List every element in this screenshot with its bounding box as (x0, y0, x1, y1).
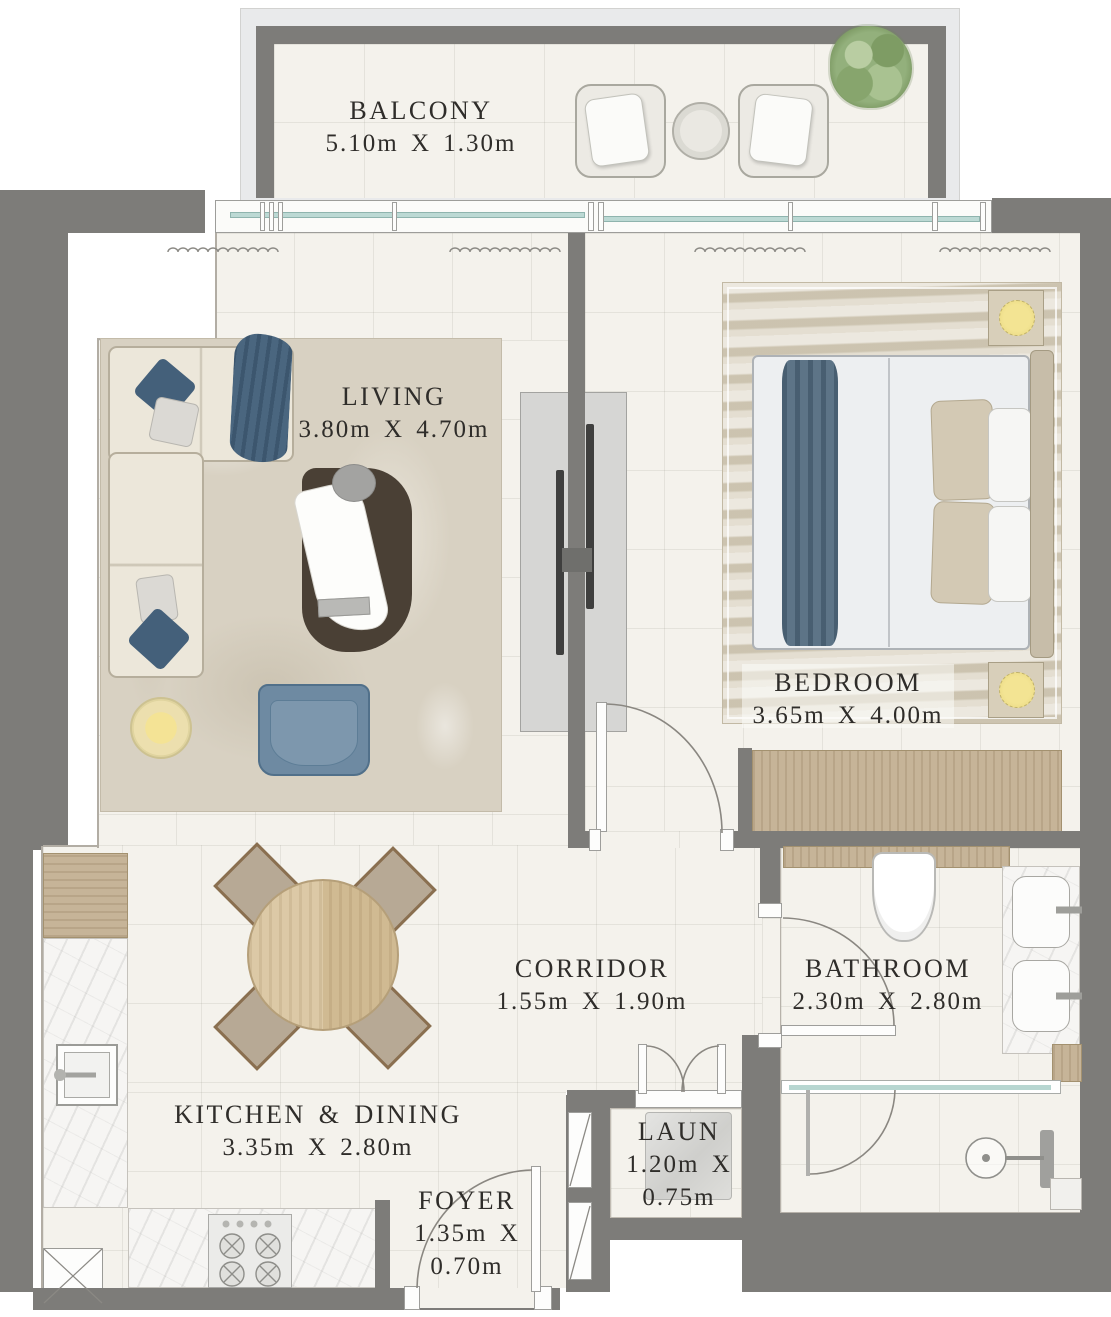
room-dims: 3.65m X 4.00m (753, 699, 944, 732)
room-name: LIVING (299, 380, 490, 413)
room-dims: 1.35m X (414, 1217, 520, 1250)
room-dims: 0.75m (626, 1181, 732, 1214)
room-name: BEDROOM (753, 666, 944, 699)
shower-head-icon (966, 1138, 1044, 1178)
linework-overlay (0, 0, 1111, 1317)
room-dims: 0.70m (414, 1250, 520, 1283)
living-label: LIVING 3.80m X 4.70m (299, 380, 490, 446)
kitchen-dining-label: KITCHEN & DINING 3.35m X 2.80m (174, 1098, 462, 1164)
laundry-label: LAUN 1.20m X 0.75m (626, 1115, 732, 1214)
corridor-label: CORRIDOR 1.55m X 1.90m (497, 952, 688, 1018)
room-name: KITCHEN & DINING (174, 1098, 462, 1131)
room-dims: 1.55m X 1.90m (497, 985, 688, 1018)
appliance-x-lines (44, 1249, 102, 1303)
floor-plan-canvas: BALCONY 5.10m X 1.30m LIVING 3.80m X 4.7… (0, 0, 1111, 1317)
room-dims: 1.20m X (626, 1148, 732, 1181)
balcony-label: BALCONY 5.10m X 1.30m (326, 94, 517, 160)
closet-louver-lines (570, 1114, 590, 1280)
kitchen-faucet-icon (54, 1069, 96, 1081)
foyer-label: FOYER 1.35m X 0.70m (414, 1184, 520, 1283)
room-dims: 3.80m X 4.70m (299, 413, 490, 446)
room-name: LAUN (626, 1115, 732, 1148)
room-dims: 2.30m X 2.80m (793, 985, 984, 1018)
bedroom-label: BEDROOM 3.65m X 4.00m (753, 666, 944, 732)
bathroom-label: BATHROOM 2.30m X 2.80m (793, 952, 984, 1018)
room-name: CORRIDOR (497, 952, 688, 985)
vanity-faucets-icon (1056, 910, 1082, 996)
hob-burners (220, 1221, 280, 1287)
room-name: FOYER (414, 1184, 520, 1217)
room-name: BALCONY (326, 94, 517, 127)
room-dims: 3.35m X 2.80m (174, 1131, 462, 1164)
room-dims: 5.10m X 1.30m (326, 127, 517, 160)
curtain-squiggles (168, 248, 1050, 252)
room-name: BATHROOM (793, 952, 984, 985)
